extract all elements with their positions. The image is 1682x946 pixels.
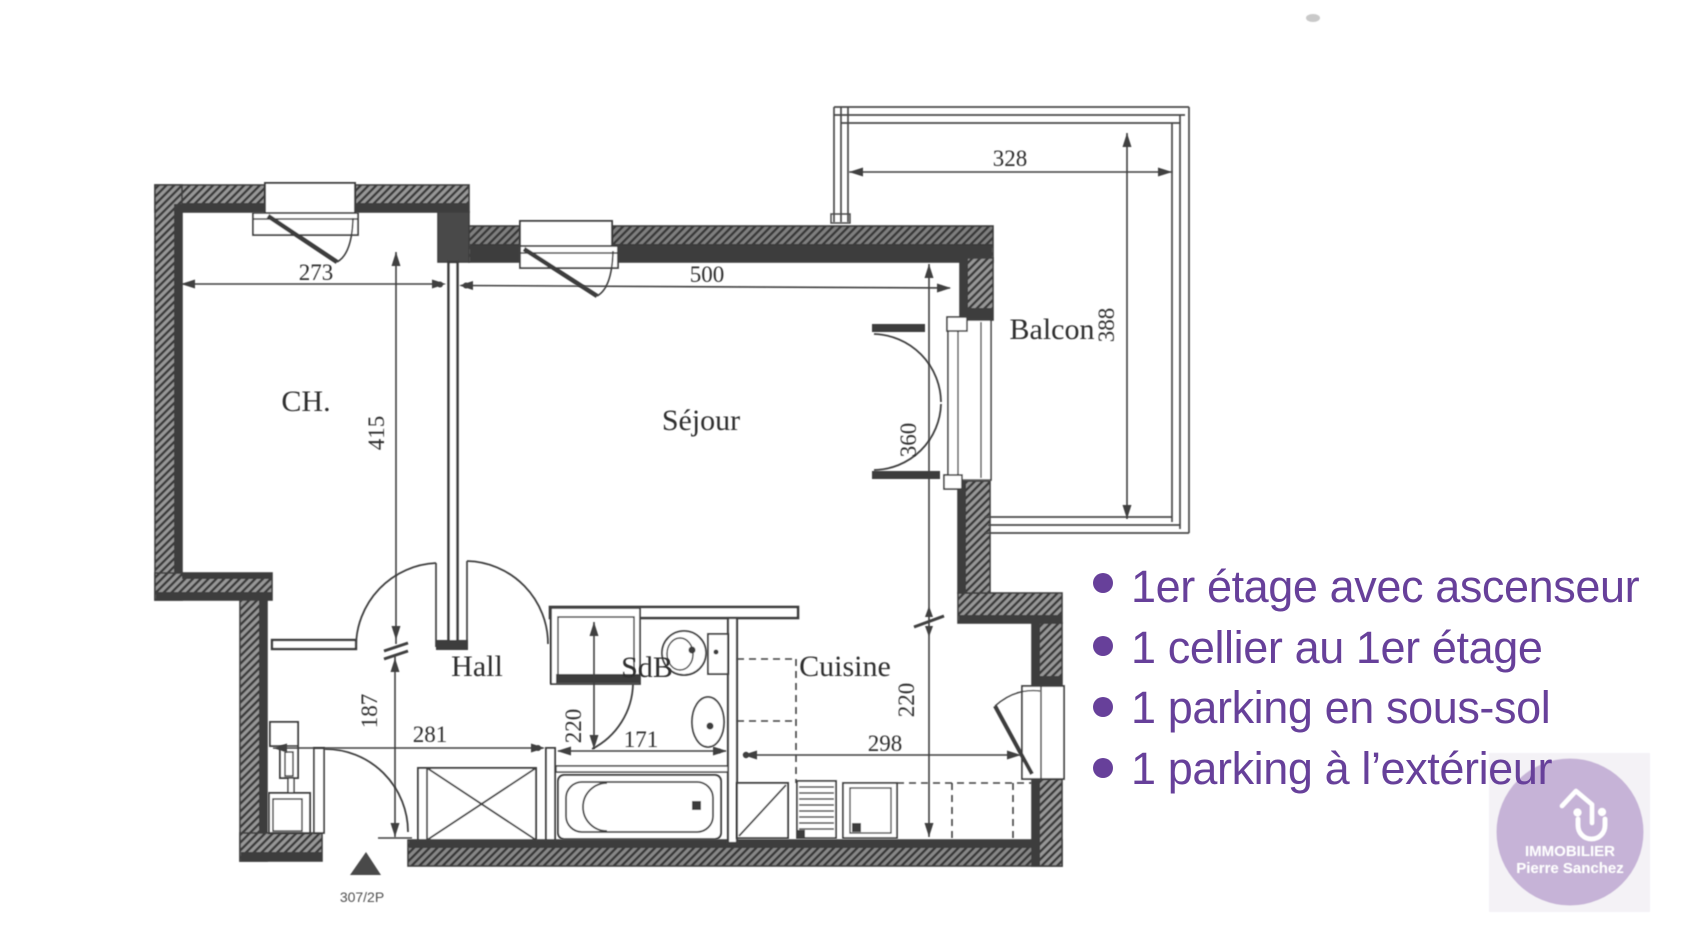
svg-text:Cuisine: Cuisine <box>799 650 891 683</box>
svg-text:171: 171 <box>624 727 659 752</box>
svg-text:298: 298 <box>868 731 903 756</box>
svg-text:CH.: CH. <box>281 385 330 418</box>
svg-text:220: 220 <box>894 683 919 718</box>
svg-text:500: 500 <box>690 262 725 287</box>
svg-text:Pierre Sanchez: Pierre Sanchez <box>1516 860 1624 877</box>
svg-text:220: 220 <box>561 709 586 744</box>
svg-text:1er étage avec ascenseur: 1er étage avec ascenseur <box>1131 561 1640 612</box>
svg-text:187: 187 <box>357 694 382 729</box>
svg-text:1 parking en sous-sol: 1 parking en sous-sol <box>1131 682 1550 733</box>
svg-text:1 parking à l’extérieur: 1 parking à l’extérieur <box>1131 743 1552 794</box>
svg-text:Hall: Hall <box>451 650 503 683</box>
svg-text:Séjour: Séjour <box>662 404 740 437</box>
svg-text:415: 415 <box>364 416 389 451</box>
svg-text:360: 360 <box>896 423 921 458</box>
svg-text:328: 328 <box>993 146 1028 171</box>
svg-text:SdB: SdB <box>621 651 673 684</box>
svg-text:Balcon: Balcon <box>1010 313 1095 346</box>
svg-text:307/2P: 307/2P <box>340 889 384 905</box>
svg-text:388: 388 <box>1094 308 1119 343</box>
svg-text:273: 273 <box>299 260 334 285</box>
svg-text:281: 281 <box>413 722 448 747</box>
svg-text:1 cellier au 1er étage: 1 cellier au 1er étage <box>1131 622 1542 673</box>
svg-text:IMMOBILIER: IMMOBILIER <box>1525 843 1615 860</box>
